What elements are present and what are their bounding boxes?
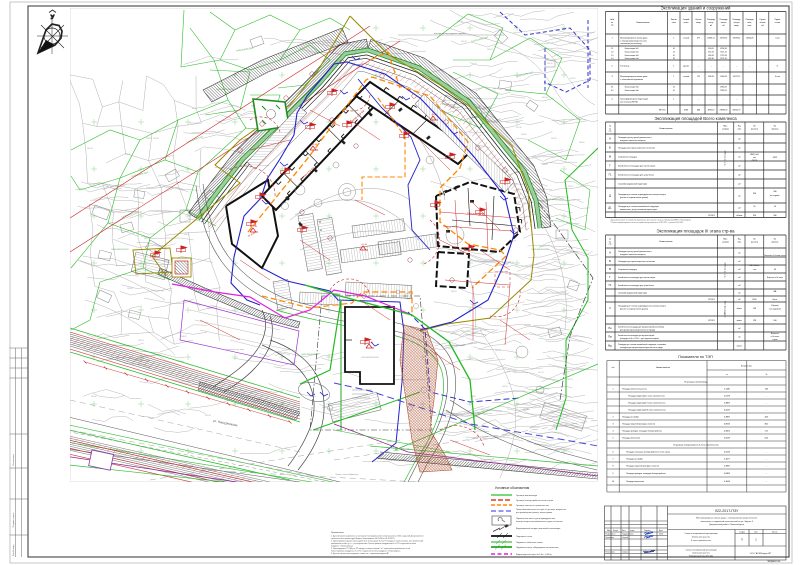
svg-text:628,43: 628,43 <box>708 55 714 57</box>
svg-text:Многоквартирные жилые дома с п: Многоквартирные жилые дома с помещениями… <box>696 518 758 520</box>
svg-text:+15,00: +15,00 <box>311 144 318 146</box>
svg-text:этаж: этаж <box>672 22 677 24</box>
svg-text:144.40: 144.40 <box>91 396 97 398</box>
svg-text:Наименование: Наименование <box>637 22 650 24</box>
svg-text:II этап: II этап <box>775 76 780 78</box>
svg-text:Хозяйственная площадка для чис: Хозяйственная площадка для чистки ковров <box>618 276 655 279</box>
svg-text:Проверил: Проверил <box>606 537 614 539</box>
svg-text:Площадь в границах благоустрой: Площадь в границах благоустройства II эт… <box>626 450 670 453</box>
svg-text:назначения с подземной автосто: назначения с подземной автостоянкой по у… <box>700 520 754 523</box>
svg-text:Площадь земельного участка: Площадь земельного участка <box>622 388 647 390</box>
svg-text:3.2: 3.2 <box>611 90 614 92</box>
svg-text:022-2017-ПЗУ: 022-2017-ПЗУ <box>715 509 739 513</box>
svg-text:7227,08: 7227,08 <box>720 55 727 57</box>
svg-text:м2: м2 <box>738 277 740 279</box>
svg-text:автотранспорта маломобильных г: автотранспорта маломобильных групп насел… <box>516 521 562 523</box>
svg-text:+15,00: +15,00 <box>251 226 258 228</box>
svg-text:Площадь: Площадь <box>745 19 753 21</box>
svg-text:159.36: 159.36 <box>87 148 93 150</box>
svg-text:0,8943: 0,8943 <box>724 423 730 425</box>
svg-text:Кол.уч: Кол.уч <box>613 530 618 532</box>
svg-text:Площадь: Площадь <box>719 19 727 21</box>
svg-text:выступ из-под подошвы здания: выступ из-под подошвы здания <box>434 33 467 35</box>
svg-text:2,1340: 2,1340 <box>724 388 730 390</box>
svg-text:В (выше): В (выше) <box>771 305 779 307</box>
svg-text:чел: чел <box>753 157 756 159</box>
svg-text:38,2: 38,2 <box>765 423 769 425</box>
svg-text:0,1627: 0,1627 <box>724 458 730 460</box>
svg-text:Наименование: Наименование <box>656 367 671 369</box>
svg-text:141.43: 141.43 <box>542 97 548 99</box>
svg-text:Показатели по ТЭП: Показатели по ТЭП <box>678 355 713 359</box>
svg-text:№: № <box>609 238 611 241</box>
svg-text:м2: м2 <box>738 207 740 209</box>
svg-text:м2: м2 <box>738 183 740 185</box>
svg-text:Спортивная площадка: Спортивная площадка <box>618 269 637 271</box>
svg-text:м2: м2 <box>738 269 740 271</box>
svg-text:Площадь покрытий проездов, отм: Площадь покрытий проездов, отмостки <box>622 422 655 425</box>
svg-text:Площадь проездов, площадок бла: Площадь проездов, площадок благоустройст… <box>626 472 666 475</box>
svg-text:Кол-во: Кол-во <box>671 19 677 21</box>
svg-text:Раковское вод. парк: Раковское вод. парк <box>226 349 244 351</box>
svg-text:9: 9 <box>612 473 613 475</box>
svg-text:расчету: расчету <box>751 241 758 243</box>
svg-text:(расчет по нормам жилых домов): (расчет по нормам жилых домов) <box>620 197 648 199</box>
svg-text:№док: №док <box>630 529 635 532</box>
svg-text:П: П <box>319 220 321 224</box>
svg-text:I этап: I этап <box>775 38 780 40</box>
svg-text:застр.: застр. <box>708 22 714 24</box>
svg-text:Подпись и дата: Подпись и дата <box>13 512 15 527</box>
svg-text:% от об. площади: % от об. площади <box>725 263 727 278</box>
svg-text:(расчет по нормам жилых домов): (расчет по нормам жилых домов) <box>620 309 648 311</box>
svg-text:Б: Б <box>609 259 611 263</box>
svg-text:0,1895: 0,1895 <box>724 465 730 467</box>
svg-text:–: – <box>698 66 699 68</box>
svg-text:155.83: 155.83 <box>551 330 557 332</box>
svg-text:340: 340 <box>773 191 776 193</box>
svg-text:м2: м2 <box>738 299 740 301</box>
svg-text:ИТОГО: ИТОГО <box>659 110 666 112</box>
svg-text:10: 10 <box>774 206 776 208</box>
svg-text:156.29: 156.29 <box>138 340 144 342</box>
svg-text:Стадия: Стадия <box>739 532 745 534</box>
svg-text:размер: размер <box>722 128 728 130</box>
svg-text:проекту: проекту <box>771 128 778 130</box>
svg-text:Хозяйственная площадка для мус: Хозяйственная площадка для мусоросборной <box>618 334 654 337</box>
svg-text:II этап строительства: II этап строительства <box>691 540 712 542</box>
svg-text:Провал: связь и Видеонабл: Провал: связь и Видеонабл <box>335 474 358 476</box>
svg-text:общ.: общ. <box>747 22 752 24</box>
svg-text:м2/маш: м2/маш <box>736 215 743 217</box>
svg-text:Наименование: Наименование <box>659 241 672 243</box>
svg-text:14272,75: 14272,75 <box>733 76 741 78</box>
svg-text:Хозяйственная площадка для мус: Хозяйственная площадка для мусоросборной… <box>618 326 664 329</box>
svg-text:1: 1 <box>673 99 674 101</box>
svg-text:152.40: 152.40 <box>153 138 159 140</box>
svg-text:с помещениями общественного: с помещениями общественного <box>620 41 647 43</box>
svg-text:Ед.: Ед. <box>738 126 741 128</box>
svg-text:Мин.: Мин. <box>723 126 728 128</box>
svg-text:земельного участка.: земельного участка. <box>692 536 711 538</box>
svg-text:7471,12: 7471,12 <box>720 51 727 53</box>
svg-text:площадки для мусоросборочной д: площадки для мусоросборочной деятельност… <box>620 346 663 349</box>
svg-text:326: 326 <box>753 215 756 217</box>
svg-text:м2: м2 <box>738 195 740 197</box>
svg-text:151.57: 151.57 <box>568 186 574 188</box>
svg-text:Трансформаторная подстанция: Трансформаторная подстанция <box>620 98 648 101</box>
svg-text:142.58: 142.58 <box>205 415 211 417</box>
svg-text:Городнянская: Городнянская <box>622 534 634 536</box>
svg-text:П: П <box>741 539 743 542</box>
svg-text:Условные обозначения: Условные обозначения <box>495 486 530 490</box>
svg-text:588,3 м2/чел: 588,3 м2/чел <box>749 265 759 267</box>
svg-text:Приме: Приме <box>774 19 780 21</box>
svg-text:160.93: 160.93 <box>487 49 493 51</box>
svg-text:143.52: 143.52 <box>570 78 576 80</box>
svg-text:Площадь застройки: Площадь застройки <box>622 415 639 418</box>
svg-text:144.63: 144.63 <box>181 336 187 338</box>
svg-text:0,1644: 0,1644 <box>724 481 730 483</box>
svg-text:–: – <box>749 66 750 68</box>
svg-text:по: по <box>609 241 611 243</box>
svg-text:Д1: Д1 <box>608 205 612 209</box>
svg-text:Экспликация зданий и сооружени: Экспликация зданий и сооружений <box>661 6 731 11</box>
svg-text:54:35:014051:5242: 54:35:014051:5242 <box>361 357 379 359</box>
svg-text:размер: размер <box>722 241 728 243</box>
svg-text:147.33: 147.33 <box>461 41 467 43</box>
svg-text:По: По <box>774 239 776 241</box>
svg-text:В: В <box>609 154 611 158</box>
svg-text:Спортивная площадка: Спортивная площадка <box>618 156 637 158</box>
svg-text:3: 3 <box>612 423 613 425</box>
svg-text:157.34: 157.34 <box>508 262 514 264</box>
svg-text:Блок-секция №6: Блок-секция №6 <box>625 89 639 92</box>
svg-text:5063,08: 5063,08 <box>720 76 727 78</box>
svg-text:Площадь проездов, площадок бла: Площадь проездов, площадок благоустройст… <box>622 429 662 432</box>
svg-text:по: по <box>609 128 611 130</box>
svg-text:54:35:014051:5212: 54:35:014051:5212 <box>546 199 564 201</box>
svg-text:Площадка для отдыха взрослого: Площадка для отдыха взрослого населения <box>618 147 655 149</box>
svg-text:№: № <box>609 125 611 128</box>
svg-text:чание: чание <box>775 22 780 24</box>
svg-text:Выполнен: Выполнен <box>771 333 779 335</box>
svg-text:младшего школьного возраста: младшего школьного возраста <box>620 140 646 142</box>
svg-text:В границах землеотвода: В границах землеотвода <box>685 382 709 384</box>
svg-text:для мусоросборочной деятельнос: для мусоросборочной деятельности города) <box>620 328 655 331</box>
svg-text:Подземные ветки к Водоприемным: Подземные ветки к Водоприемным решеткам <box>516 547 559 549</box>
svg-text:125: 125 <box>697 76 700 78</box>
svg-text:м2: м2 <box>738 147 740 149</box>
svg-text:ООО "АСМ-Фирма 88": ООО "АСМ-Фирма 88" <box>750 552 772 555</box>
svg-text:м2: м2 <box>738 138 740 140</box>
svg-text:Наименование: Наименование <box>659 128 672 130</box>
svg-text:1.4: 1.4 <box>611 58 614 60</box>
svg-text:этажн: этажн <box>683 22 688 24</box>
svg-text:Разбивочный план М 1:500: Разбивочный план М 1:500 <box>689 554 713 557</box>
svg-text:Многоквартирные жилые дома: Многоквартирные жилые дома <box>620 76 648 78</box>
svg-text:Хозяйственная площадка для суш: Хозяйственная площадка для сушки белья <box>618 173 654 176</box>
svg-text:0,3895: 0,3895 <box>724 416 730 418</box>
svg-text:161.34: 161.34 <box>495 350 501 352</box>
svg-text:%: % <box>766 374 768 376</box>
svg-text:7: 7 <box>612 458 613 460</box>
svg-text:Ед.: Ед. <box>738 239 741 241</box>
svg-text:Площадь: Площадь <box>732 19 740 21</box>
svg-text:1.3: 1.3 <box>611 55 614 57</box>
svg-text:Инв № подл.: Инв № подл. <box>12 544 15 556</box>
svg-text:0,3869: 0,3869 <box>724 402 730 404</box>
svg-text:м/мест: м/мест <box>737 320 743 322</box>
svg-text:50: 50 <box>774 269 776 271</box>
svg-text:100: 100 <box>765 388 768 390</box>
svg-text:25681,51: 25681,51 <box>707 38 715 40</box>
svg-text:–: – <box>711 99 712 101</box>
svg-text:м2: м2 <box>722 25 724 27</box>
svg-text:кварт: кварт <box>696 22 701 24</box>
svg-text:пом.: пом. <box>748 25 752 27</box>
svg-text:У: У <box>51 15 55 21</box>
svg-text:назначения (по генплану): назначения (по генплану) <box>620 43 642 45</box>
svg-text:м2: м2 <box>738 292 740 294</box>
svg-text:Граница землеотвода: Граница землеотвода <box>516 495 538 497</box>
svg-text:м2: м2 <box>738 174 740 176</box>
svg-text:ИТОГО: ИТОГО <box>708 320 715 322</box>
svg-text:0,3603: 0,3603 <box>724 430 730 432</box>
svg-text:Мин.: Мин. <box>723 239 728 241</box>
svg-text:Была: Была <box>773 299 778 301</box>
svg-text:10: 10 <box>673 48 675 50</box>
svg-text:(площадка №1) на ТСН — для отд: (площадка №1) на ТСН — для отдельных при… <box>620 337 659 340</box>
svg-text:151.76: 151.76 <box>538 372 544 374</box>
svg-text:146.66: 146.66 <box>579 142 585 144</box>
svg-text:50812,77: 50812,77 <box>733 110 741 112</box>
svg-text:Площадь территории II этапа ст: Площадь территории II этапа строительств… <box>628 402 665 404</box>
svg-text:5: 5 <box>612 437 613 439</box>
svg-text:м/мест: м/мест <box>737 308 743 310</box>
svg-text:м2: м2 <box>710 25 712 27</box>
svg-text:Экспликация площадок III этапа: Экспликация площадок III этапа стр-ва <box>657 229 736 234</box>
svg-text:Мд: Мд <box>608 344 612 347</box>
svg-text:м2: м2 <box>738 328 740 330</box>
svg-text:Согласовано: Согласовано <box>13 453 15 466</box>
svg-text:3.1: 3.1 <box>611 87 614 89</box>
svg-text:м3: м3 <box>761 25 763 27</box>
svg-text:Б: Б <box>609 145 611 149</box>
svg-text:Площадки для стоянок индивидуа: Площадки для стоянок индивидуального авт… <box>618 306 666 308</box>
svg-text:17,1: 17,1 <box>765 430 769 432</box>
svg-text:23984,72: 23984,72 <box>720 110 728 112</box>
svg-text:расчету: расчету <box>751 128 758 130</box>
svg-text:Площадь застройки: Площадь застройки <box>626 457 643 460</box>
svg-text:340: 340 <box>773 215 776 217</box>
svg-text:м2: м2 <box>738 261 740 263</box>
svg-text:Блок-секция №1: Блок-секция №1 <box>625 47 639 50</box>
svg-text:148.52: 148.52 <box>542 164 548 166</box>
svg-text:142.24: 142.24 <box>567 379 573 381</box>
svg-text:–: – <box>736 66 737 68</box>
svg-text:вкл. подземн.: вкл. подземн. <box>770 195 781 197</box>
svg-text:Площадь озеленения: Площадь озеленения <box>626 481 644 483</box>
svg-text:По: По <box>753 239 755 241</box>
svg-text:10: 10 <box>673 90 675 92</box>
svg-text:кварт: кварт <box>734 25 739 27</box>
svg-text:Подземная кабельная линия: Подземная кабельная линия <box>516 542 543 544</box>
svg-text:Гостиница: Гостиница <box>620 66 630 68</box>
svg-text:Собуль: Собуль <box>622 552 628 554</box>
svg-text:Граница этапности строительств: Граница этапности строительства <box>516 505 550 507</box>
svg-text:А: А <box>609 136 611 140</box>
svg-text:жилая: жилая <box>721 22 727 24</box>
svg-text:Экспликация площадей Всего ком: Экспликация площадей Всего комплекса <box>654 116 737 121</box>
svg-text:0,0883: 0,0883 <box>724 473 730 475</box>
svg-text:Многоквартирные жилые дома: Многоквартирные жилые дома <box>620 38 648 40</box>
svg-text:Площадка для игр детей дошколь: Площадка для игр детей дошкольного и <box>618 136 652 139</box>
svg-text:Площадка для игр детей дошколь: Площадка для игр детей дошкольного и <box>618 250 652 253</box>
svg-text:п/п: п/п <box>612 367 615 369</box>
svg-text:+15,00: +15,00 <box>367 342 374 344</box>
svg-text:–: – <box>749 99 750 101</box>
svg-text:155.54: 155.54 <box>502 386 508 388</box>
svg-text:1: 1 <box>673 38 674 40</box>
svg-text:148.18: 148.18 <box>451 291 457 293</box>
svg-text:0,5643: 0,5643 <box>724 437 730 439</box>
svg-text:Линия максимального отступа от: Линия максимального отступа от границы з… <box>516 509 567 511</box>
svg-text:2: 2 <box>612 416 613 418</box>
svg-text:2980,47: 2980,47 <box>720 87 727 89</box>
svg-text:Формат А1: Формат А1 <box>767 559 781 563</box>
svg-text:–: – <box>723 66 724 68</box>
svg-text:ИТОГО: ИТОГО <box>708 215 715 217</box>
svg-text:898,49: 898,49 <box>708 76 714 78</box>
svg-text:Блок-секция №3: Блок-секция №3 <box>625 54 639 57</box>
svg-text:Разработал: Разработал <box>606 534 616 536</box>
svg-text:Кол-во: Кол-во <box>696 19 702 21</box>
svg-text:общая: общая <box>734 22 740 24</box>
svg-text:Площадь: Площадь <box>707 19 715 21</box>
svg-text:стр-ва: стр-ва <box>772 339 777 341</box>
svg-text:1843,3 м2/: 1843,3 м2/ <box>750 154 759 156</box>
svg-text:м2: м2 <box>738 165 740 167</box>
svg-text:0,5026: 0,5026 <box>724 409 730 411</box>
svg-text:с объектами обслуживания: с объектами обслуживания <box>620 79 643 81</box>
svg-text:В: В <box>609 267 611 271</box>
svg-text:этажей: этажей <box>683 75 689 78</box>
svg-text:Сергей: Сергей <box>622 536 628 539</box>
svg-text:14: 14 <box>673 87 675 89</box>
svg-text:2105: 2105 <box>752 299 756 301</box>
svg-text:677: 677 <box>697 38 700 40</box>
svg-text:~чел: ~чел <box>753 269 757 271</box>
svg-text:изм.: изм. <box>738 241 742 243</box>
svg-text:А: А <box>320 228 322 232</box>
svg-text:158.30: 158.30 <box>146 138 152 140</box>
svg-text:По: По <box>753 126 755 128</box>
svg-text:152.50: 152.50 <box>516 127 522 129</box>
svg-text:Площадка для отдыха взрослого: Площадка для отдыха взрослого населения <box>618 261 655 263</box>
svg-text:6: 6 <box>612 451 613 453</box>
svg-text:146.89: 146.89 <box>521 134 527 136</box>
svg-text:% от об. площади: % от об. площади <box>725 151 727 166</box>
svg-text:Листов: Листов <box>772 532 778 534</box>
svg-text:Блок-секция №2: Блок-секция №2 <box>625 50 639 53</box>
svg-text:земельного участка.: земельного участка. <box>692 552 710 554</box>
svg-text:0,2473: 0,2473 <box>724 395 730 397</box>
svg-text:Хозяйственная площадка для суш: Хозяйственная площадка для сушки белья <box>618 284 654 287</box>
svg-text:младшего школьного возраста: младшего школьного возраста <box>620 254 646 256</box>
svg-text:695,30: 695,30 <box>708 58 714 60</box>
svg-text:Строит.: Строит. <box>759 19 766 21</box>
svg-text:Скамейки придомовой территории: Скамейки придомовой территории <box>618 182 647 185</box>
svg-text:18: 18 <box>673 58 675 60</box>
svg-text:–: – <box>723 99 724 101</box>
svg-text:1.1: 1.1 <box>611 48 614 50</box>
svg-text:625,15: 625,15 <box>708 51 714 53</box>
svg-text:(по генплану 2КТПБ): (по генплану 2КТПБ) <box>620 102 638 104</box>
svg-text:26,4: 26,4 <box>765 437 769 439</box>
svg-text:м2: м2 <box>738 336 740 338</box>
svg-text:5122,16: 5122,16 <box>720 58 727 60</box>
svg-text:142.10: 142.10 <box>547 63 553 65</box>
svg-text:1: 1 <box>612 388 613 390</box>
svg-text:18,3: 18,3 <box>765 416 769 418</box>
svg-text:Схема планировочной организаци: Схема планировочной организации <box>685 549 716 552</box>
svg-text:54:35:014051:5212: 54:35:014051:5212 <box>111 249 129 251</box>
svg-text:159.65: 159.65 <box>551 138 557 140</box>
svg-text:+15,00: +15,00 <box>431 114 438 116</box>
svg-text:м2: м2 <box>738 285 740 287</box>
svg-text:145.66: 145.66 <box>470 396 476 398</box>
svg-text:Блок-секция №4: Блок-секция №4 <box>625 57 639 60</box>
svg-text:Лист: Лист <box>754 532 758 534</box>
svg-text:Площадь территории III этапа с: Площадь территории III этапа строительст… <box>628 409 666 411</box>
svg-text:проезд 6000 мусоровоз: проезд 6000 мусоровоз <box>445 345 465 347</box>
svg-text:8: 8 <box>612 465 613 467</box>
svg-text:А: А <box>609 250 611 254</box>
svg-text:128: 128 <box>753 320 756 322</box>
svg-text:14: 14 <box>673 51 675 53</box>
svg-text:Секций: Секций <box>683 18 689 21</box>
svg-text:0,5043: 0,5043 <box>724 451 730 453</box>
svg-text:изм.: изм. <box>738 128 742 130</box>
svg-text:объем: объем <box>760 22 766 24</box>
svg-text:В границах благоустройства II: В границах благоустройства II этапа стро… <box>673 444 719 447</box>
svg-text:здание: здание <box>683 66 689 68</box>
svg-text:–: – <box>711 66 712 68</box>
svg-text:4: 4 <box>612 430 613 432</box>
svg-text:м2: м2 <box>738 156 740 158</box>
svg-text:154.98: 154.98 <box>523 409 529 411</box>
svg-text:Схема планировочной организаци: Схема планировочной организации <box>684 532 717 535</box>
svg-text:Площадка для стоянки автомобил: Площадка для стоянки автомобилей следующ… <box>618 343 667 346</box>
svg-text:Площадь озеленения: Площадь озеленения <box>622 437 640 439</box>
svg-text:этажей: этажей <box>683 37 689 40</box>
svg-text:24794,74: 24794,74 <box>720 38 728 40</box>
svg-text:Скамейки придомовой территории: Скамейки придомовой территории <box>618 291 647 294</box>
svg-text:Площадь покрытий проездов, отм: Площадь покрытий проездов, отмостки <box>626 464 659 467</box>
svg-text:№№: №№ <box>610 18 614 21</box>
svg-text:10436,26: 10436,26 <box>746 38 754 40</box>
svg-text:Граница благоустройства этапа: Граница благоустройства этапа стр-ва <box>516 499 554 502</box>
svg-text:10: 10 <box>612 481 614 483</box>
svg-text:м2: м2 <box>738 252 740 254</box>
svg-text:1: 1 <box>673 76 674 78</box>
svg-text:Шумозащитный экран h=2,5м , L=: Шумозащитный экран h=2,5м , L=85 м <box>516 553 552 556</box>
svg-text:Водоприемный колодец ливневой: Водоприемный колодец ливневой канализаци… <box>516 527 560 530</box>
svg-text:Дата: Дата <box>659 530 663 532</box>
svg-text:для размещения проекц. жилых д: для размещения проекц. жилых домов <box>516 512 552 514</box>
svg-text:03.18: 03.18 <box>659 534 663 536</box>
